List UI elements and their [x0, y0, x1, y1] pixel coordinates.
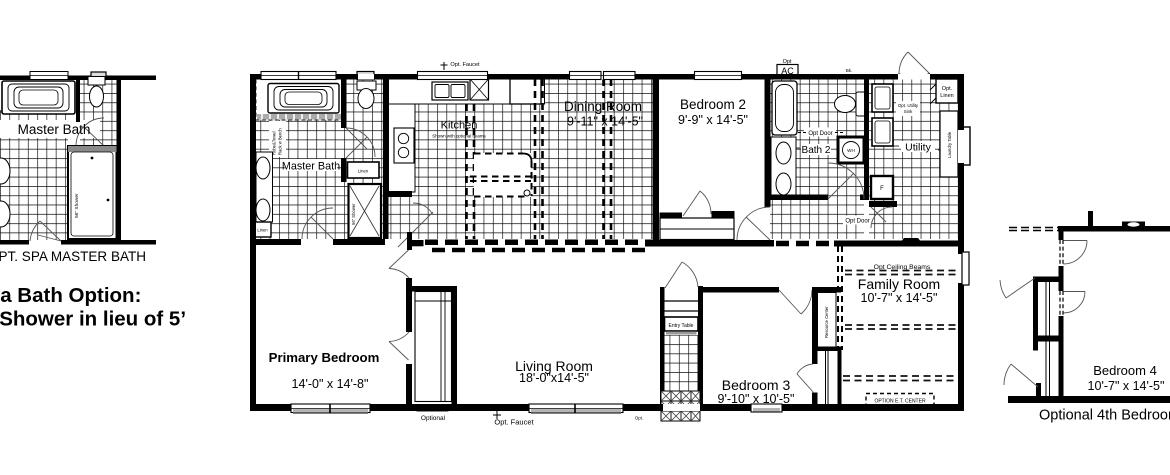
- svg-text:Opt. Faucet: Opt. Faucet: [494, 418, 534, 427]
- svg-text:10'-7" x 14'-5": 10'-7" x 14'-5": [861, 291, 938, 305]
- svg-text:WH: WH: [847, 148, 855, 153]
- svg-text:Opt Door: Opt Door: [808, 131, 832, 137]
- svg-text:F: F: [880, 186, 884, 192]
- svg-text:Optional: Optional: [421, 415, 446, 422]
- svg-text:Opt. Faucet: Opt. Faucet: [450, 62, 480, 68]
- svg-text:OPTION E.T. CENTER: OPTION E.T. CENTER: [874, 399, 926, 405]
- svg-text:Bedroom 4: Bedroom 4: [1093, 363, 1157, 378]
- svg-text:18'-0"x14'-5": 18'-0"x14'-5": [519, 371, 589, 385]
- svg-text:Master Bath: Master Bath: [18, 122, 91, 137]
- svg-text:Opt Door: Opt Door: [845, 219, 869, 225]
- svg-text:Utility: Utility: [905, 142, 931, 154]
- svg-text:Resource Center: Resource Center: [824, 306, 829, 338]
- svg-text:Bedroom 3: Bedroom 3: [722, 377, 791, 393]
- svg-text:Family Room: Family Room: [858, 276, 940, 292]
- svg-text:Linen: Linen: [940, 93, 953, 99]
- svg-text:Primary Bedroom: Primary Bedroom: [269, 350, 380, 365]
- svg-text:9'-9" x 14'-5": 9'-9" x 14'-5": [678, 113, 748, 127]
- svg-text:56" Shower: 56" Shower: [351, 203, 356, 225]
- svg-text:Robe&Towel: Robe&Towel: [272, 131, 277, 155]
- svg-text:Spa Bath Option:: Spa Bath Option:: [0, 284, 141, 307]
- svg-text:Bath 2: Bath 2: [802, 145, 831, 156]
- svg-text:Dining Room: Dining Room: [564, 99, 642, 114]
- svg-text:Laundry Table: Laundry Table: [947, 131, 952, 158]
- svg-text:Sink: Sink: [904, 109, 913, 114]
- svg-text:Optional 4th Bedroom: Optional 4th Bedroom: [1039, 408, 1170, 424]
- svg-text:56" Shower in lieu of 5’: 56" Shower in lieu of 5’: [0, 308, 186, 331]
- svg-text:OPT. SPA MASTER BATH: OPT. SPA MASTER BATH: [0, 248, 146, 264]
- svg-text:Bedroom 2: Bedroom 2: [680, 97, 746, 112]
- svg-text:Opt. Utility: Opt. Utility: [898, 103, 919, 108]
- svg-text:Shown with optional beams: Shown with optional beams: [432, 134, 486, 139]
- svg-text:Entry Table: Entry Table: [669, 323, 694, 329]
- svg-text:Linen: Linen: [257, 228, 268, 233]
- svg-text:Opt.: Opt.: [942, 86, 953, 92]
- svg-text:10'-7" x 14'-5": 10'-7" x 14'-5": [1088, 379, 1165, 393]
- svg-text:9'-11" x 14'-5": 9'-11" x 14'-5": [567, 115, 643, 129]
- svg-text:56" Shower: 56" Shower: [74, 193, 80, 218]
- svg-text:Bk.: Bk.: [846, 68, 852, 73]
- svg-text:Rack w Bench: Rack w Bench: [278, 128, 283, 155]
- svg-text:14'-0" x 14'-8": 14'-0" x 14'-8": [292, 377, 369, 391]
- svg-text:Kitchen: Kitchen: [441, 120, 478, 132]
- svg-text:Linen: Linen: [358, 169, 369, 174]
- svg-text:Master Bath: Master Bath: [282, 161, 340, 173]
- svg-text:Opt.: Opt.: [635, 416, 643, 421]
